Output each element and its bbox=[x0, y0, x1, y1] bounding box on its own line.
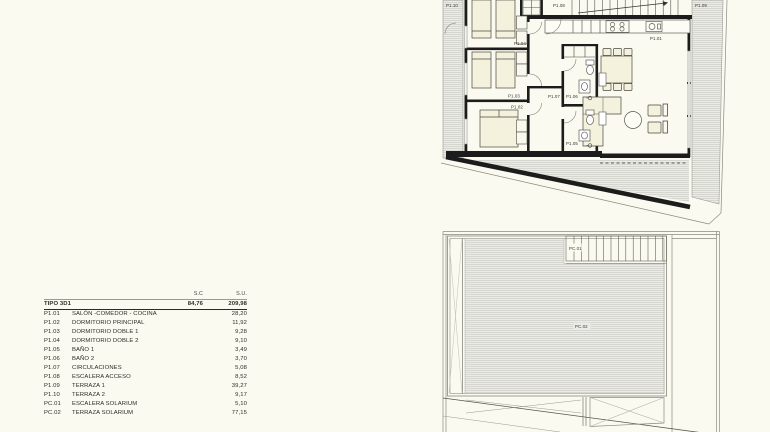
room-code: P1.07 bbox=[44, 364, 72, 373]
room-label: P1.06 bbox=[566, 94, 578, 99]
solarium-plan: PC.01 PC.02 bbox=[443, 232, 720, 432]
room-label: P1.04 bbox=[514, 41, 526, 46]
area-row: P1.02 DORMITORIO PRINCIPAL 11,92 bbox=[44, 319, 247, 328]
area-row: PC.02 TERRAZA SOLARIUM 77,15 bbox=[44, 409, 247, 418]
room-name: ESCALERA ACCESO bbox=[72, 373, 157, 382]
room-label: P1.08 bbox=[553, 3, 565, 8]
room-label: P1.02 bbox=[511, 105, 523, 110]
area-row: P1.01 SALÓN -COMEDOR - COCINA 28,20 bbox=[44, 310, 247, 319]
area-table-tipo-row: TIPO 3D1 84,76 209,98 bbox=[44, 299, 247, 310]
first-floor-plan: P1.10 P1.08 P1.09 P1.04 P1.01 P1.03 P1.0… bbox=[441, 0, 727, 224]
room-su-value: 5,10 bbox=[203, 400, 247, 409]
area-table-header: S.C S.U. bbox=[44, 290, 247, 299]
room-name: ESCALERA SOLARIUM bbox=[72, 400, 157, 409]
tipo-su-value: 209,98 bbox=[203, 300, 247, 309]
room-su-value: 28,20 bbox=[203, 310, 247, 319]
room-su-value: 8,52 bbox=[203, 373, 247, 382]
room-label: P1.07 bbox=[548, 94, 560, 99]
bath-sink-icon bbox=[579, 130, 590, 141]
solarium-terrace-hatch bbox=[465, 239, 664, 394]
armchair bbox=[648, 122, 661, 133]
room-label: PC.02 bbox=[575, 324, 588, 329]
wardrobes bbox=[517, 16, 528, 144]
room-name: DORMITORIO DOBLE 2 bbox=[72, 337, 157, 346]
room-label: P1.05 bbox=[566, 141, 578, 146]
room-name: TERRAZA 2 bbox=[72, 391, 157, 400]
hall-closets bbox=[523, 0, 540, 15]
room-su-value: 3,70 bbox=[203, 355, 247, 364]
area-row: P1.04 DORMITORIO DOBLE 2 9,10 bbox=[44, 337, 247, 346]
room-su-value: 5,08 bbox=[203, 364, 247, 373]
room-label: P1.09 bbox=[695, 3, 707, 8]
room-code: P1.05 bbox=[44, 346, 72, 355]
area-row: P1.06 BAÑO 2 3,70 bbox=[44, 355, 247, 364]
room-code: P1.08 bbox=[44, 373, 72, 382]
solarium-lower-structure bbox=[443, 397, 700, 432]
area-row: P1.08 ESCALERA ACCESO 8,52 bbox=[44, 373, 247, 382]
room-su-value: 11,92 bbox=[203, 319, 247, 328]
armchair bbox=[648, 105, 661, 116]
kitchen bbox=[545, 20, 690, 33]
room-name: CIRCULACIONES bbox=[72, 364, 157, 373]
room-code: P1.02 bbox=[44, 319, 72, 328]
room-su-value: 9,17 bbox=[203, 391, 247, 400]
room-code: P1.09 bbox=[44, 382, 72, 391]
area-row: P1.05 BAÑO 1 3,49 bbox=[44, 346, 247, 355]
room-code: P1.10 bbox=[44, 391, 72, 400]
room-name: DORMITORIO PRINCIPAL bbox=[72, 319, 157, 328]
bath-sink-icon bbox=[579, 80, 590, 93]
cross-brace bbox=[449, 239, 462, 393]
room-code: P1.04 bbox=[44, 337, 72, 346]
col-header-sc: S.C bbox=[157, 290, 203, 299]
room-label: P1.10 bbox=[446, 3, 458, 8]
room-code: P1.06 bbox=[44, 355, 72, 364]
room-su-value: 9,28 bbox=[203, 328, 247, 337]
room-code: PC.02 bbox=[44, 409, 72, 418]
room-code: P1.03 bbox=[44, 328, 72, 337]
room-code: PC.01 bbox=[44, 400, 72, 409]
access-stairs bbox=[572, 0, 678, 15]
toilet-icon bbox=[586, 60, 594, 65]
room-name: BAÑO 1 bbox=[72, 346, 157, 355]
room-name: BAÑO 2 bbox=[72, 355, 157, 364]
room-code: P1.01 bbox=[44, 310, 72, 319]
bed bbox=[472, 52, 491, 88]
room-su-value: 3,49 bbox=[203, 346, 247, 355]
tipo-name: TIPO 3D1 bbox=[44, 300, 157, 309]
room-su-value: 77,15 bbox=[203, 409, 247, 418]
room-name: DORMITORIO DOBLE 1 bbox=[72, 328, 157, 337]
room-name: TERRAZA 1 bbox=[72, 382, 157, 391]
area-row: P1.07 CIRCULACIONES 5,08 bbox=[44, 364, 247, 373]
area-row: P1.03 DORMITORIO DOBLE 1 9,28 bbox=[44, 328, 247, 337]
stove-icon bbox=[606, 21, 629, 33]
tipo-sc-value: 84,76 bbox=[157, 300, 203, 309]
bed bbox=[496, 52, 515, 88]
sink-icon bbox=[646, 22, 662, 32]
room-name: TERRAZA SOLARIUM bbox=[72, 409, 157, 418]
toilet-icon bbox=[586, 110, 594, 115]
room-label: P1.01 bbox=[650, 36, 662, 41]
area-table: S.C S.U. TIPO 3D1 84,76 209,98 P1.01 SAL… bbox=[44, 290, 247, 418]
bed bbox=[472, 0, 491, 38]
room-su-value: 9,10 bbox=[203, 337, 247, 346]
col-header-su: S.U. bbox=[203, 290, 247, 299]
area-row: P1.10 TERRAZA 2 9,17 bbox=[44, 391, 247, 400]
room-label: P1.03 bbox=[508, 94, 520, 99]
drawing-sheet: P1.10 P1.08 P1.09 P1.04 P1.01 P1.03 P1.0… bbox=[0, 0, 770, 432]
area-row: PC.01 ESCALERA SOLARIUM 5,10 bbox=[44, 400, 247, 409]
room-name: SALÓN -COMEDOR - COCINA bbox=[72, 310, 157, 319]
room-su-value: 39,27 bbox=[203, 382, 247, 391]
bed bbox=[496, 0, 515, 38]
room-label: PC.01 bbox=[569, 246, 582, 251]
area-row: P1.09 TERRAZA 1 39,27 bbox=[44, 382, 247, 391]
bedroom-furniture bbox=[472, 0, 527, 147]
round-table bbox=[625, 112, 642, 129]
living-room-furniture bbox=[583, 73, 688, 163]
